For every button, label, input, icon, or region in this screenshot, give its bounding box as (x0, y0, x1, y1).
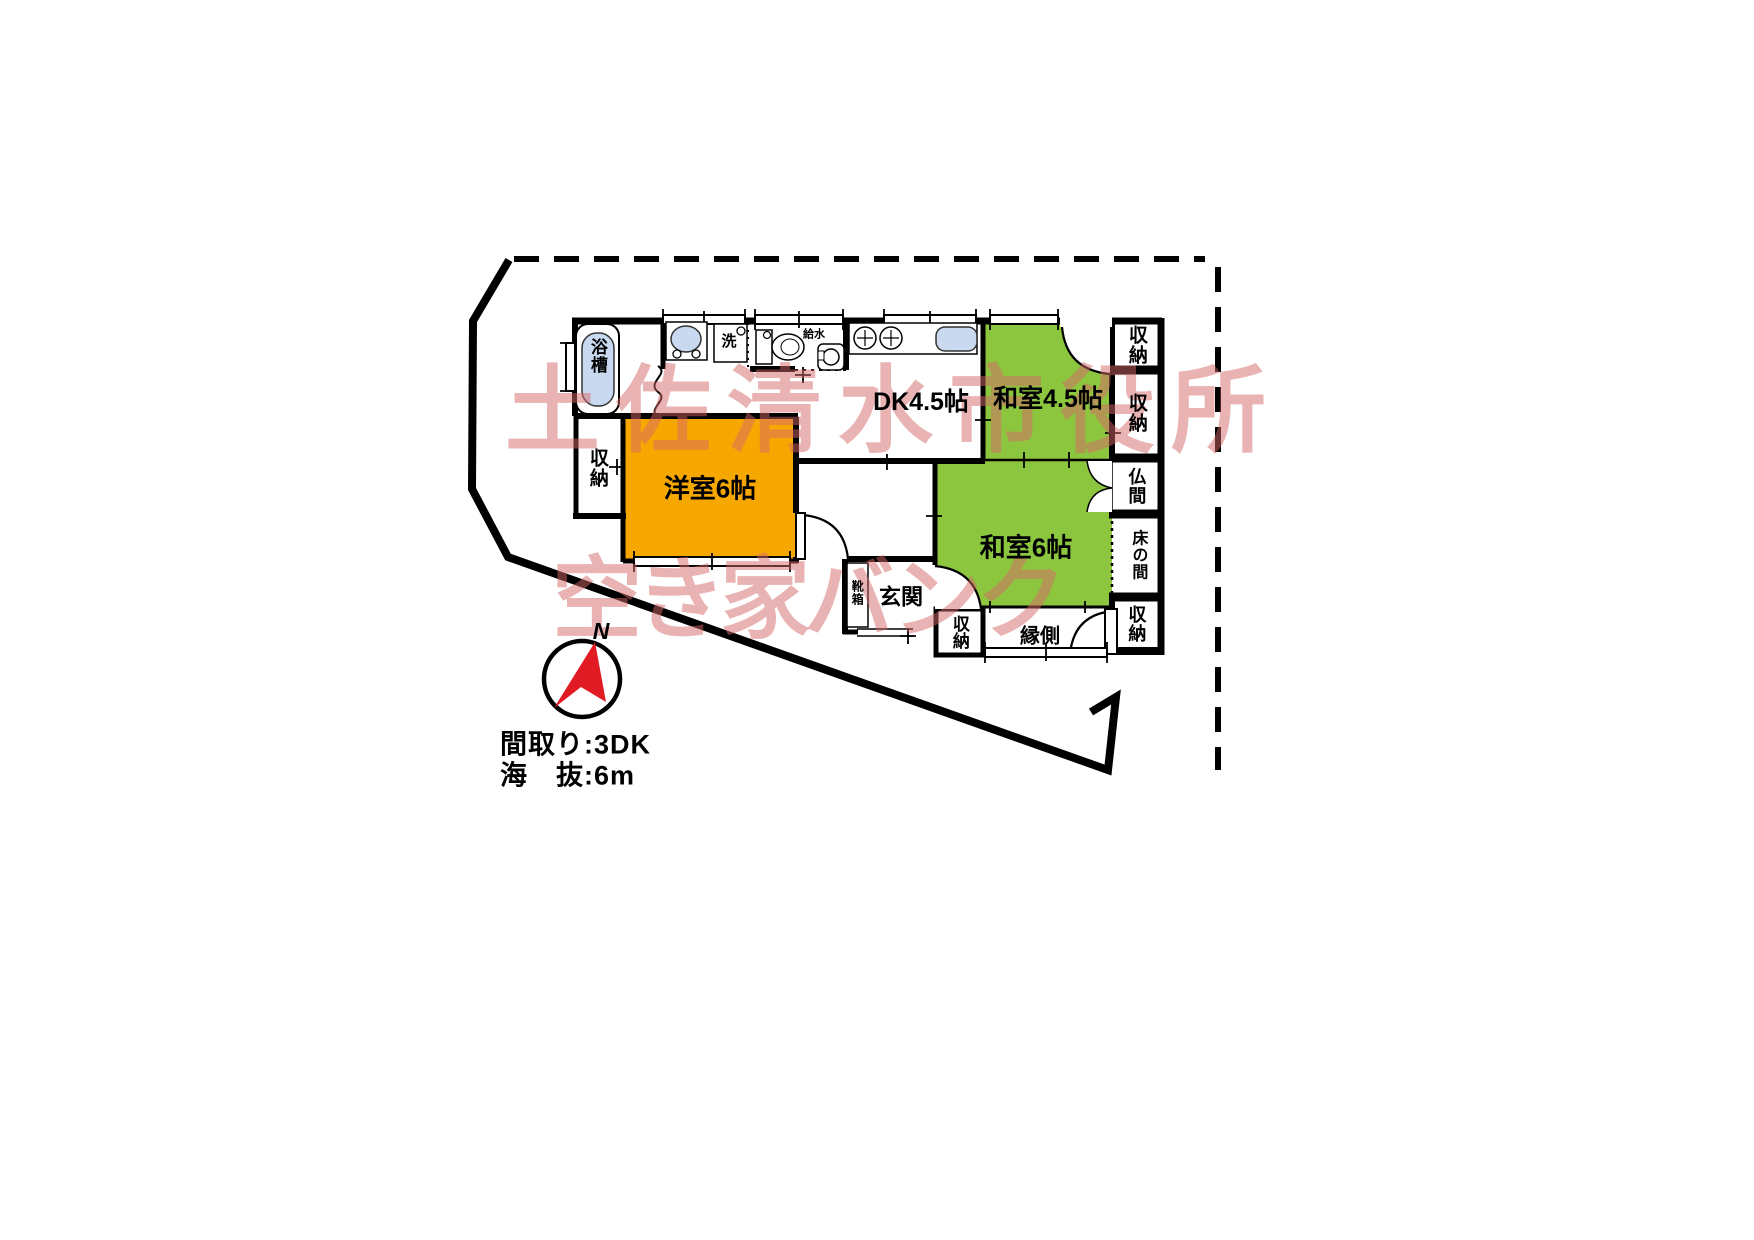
label-dining-kitchen: DK4.5帖 (873, 389, 969, 415)
compass-north-label: N (593, 620, 610, 644)
label-bathtub: 浴槽 (588, 338, 606, 374)
wash-basin-icon (666, 322, 707, 360)
label-tokonoma: 床の間 (1129, 530, 1146, 581)
elevation-info-text: 海 抜:6m (500, 754, 635, 793)
label-water-supply: 給水 (803, 329, 825, 340)
label-storage-se: 収納 (1127, 605, 1146, 643)
kitchen-counter (849, 323, 977, 354)
label-veranda: 縁側 (1020, 627, 1060, 648)
label-storage-west: 収納 (587, 448, 607, 488)
kitchen-sink-icon (936, 327, 977, 351)
label-japanese-room-6: 和室6帖 (980, 534, 1072, 561)
label-wash: 洗 (721, 334, 736, 350)
compass (544, 641, 620, 717)
label-storage-ne: 収納 (1126, 325, 1146, 365)
label-japanese-room-45: 和室4.5帖 (993, 386, 1103, 412)
label-shoe-box: 靴箱 (851, 580, 863, 606)
label-butsuma: 仏間 (1127, 467, 1146, 505)
floor-plan-page: 土佐清水市役所 空き家バンク 浴槽 洗 給水 DK4.5帖 和室4.5帖 和室6… (0, 0, 1754, 1240)
label-western-room: 洋室6帖 (664, 475, 756, 502)
label-entrance: 玄関 (879, 587, 923, 610)
label-storage-entrance: 収納 (950, 615, 968, 649)
label-storage-east: 収納 (1126, 393, 1146, 433)
watermark-line2: 空き家バンク (552, 555, 1061, 645)
